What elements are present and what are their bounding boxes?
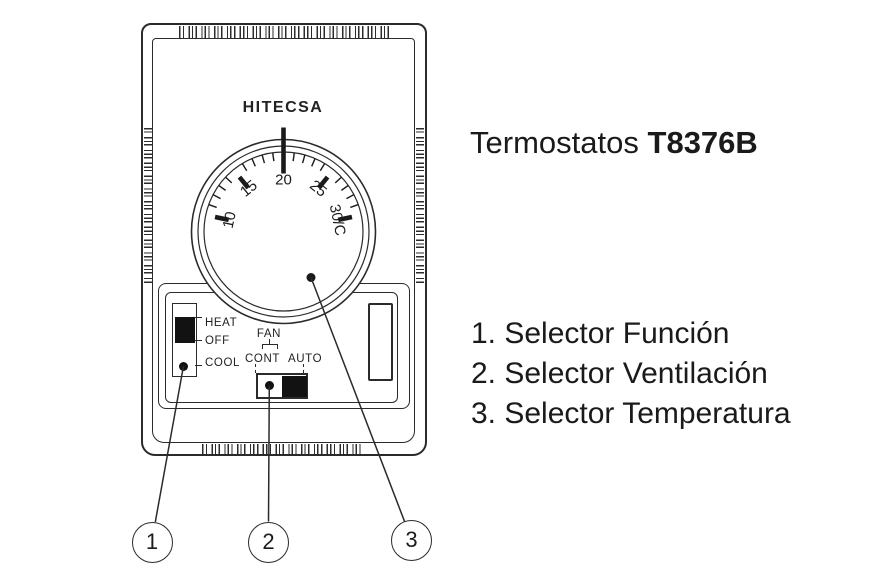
dial-scale-label-10: 10 bbox=[220, 210, 240, 230]
vent-slots-bottom bbox=[202, 444, 364, 454]
position-mark-cool bbox=[195, 365, 202, 366]
function-label-heat: HEAT bbox=[205, 317, 237, 330]
temperature-dial[interactable]: 1015202530/C bbox=[170, 118, 397, 345]
fan-label-cont: CONT bbox=[245, 353, 280, 366]
title-prefix: Termostatos bbox=[470, 125, 639, 160]
vent-slots-left bbox=[144, 127, 152, 283]
callout-2-number: 2 bbox=[262, 529, 274, 555]
fan-label-auto: AUTO bbox=[288, 353, 322, 366]
fan-switch-knob[interactable] bbox=[282, 376, 307, 397]
legend-item-3: 3. Selector Temperatura bbox=[471, 394, 791, 434]
vent-slots-top bbox=[179, 26, 389, 38]
fan-bracket-fork bbox=[262, 344, 278, 350]
callout-2: 2 bbox=[248, 522, 289, 563]
legend-list: 1. Selector Función 2. Selector Ventilac… bbox=[471, 314, 791, 434]
callout-1: 1 bbox=[132, 522, 173, 563]
position-mark-off bbox=[195, 340, 202, 341]
dial-scale-label-20: 20 bbox=[275, 172, 292, 189]
legend-item-2: 2. Selector Ventilación bbox=[471, 354, 791, 394]
position-mark-heat bbox=[195, 317, 202, 318]
callout-3: 3 bbox=[391, 520, 432, 561]
fan-position-connector-cont bbox=[255, 364, 256, 373]
callout-anchor-2 bbox=[265, 381, 274, 390]
callout-anchor-3 bbox=[307, 273, 316, 282]
function-label-cool: COOL bbox=[205, 357, 240, 370]
vent-slots-right bbox=[416, 127, 424, 283]
display-window bbox=[368, 303, 393, 381]
legend-item-1: 1. Selector Función bbox=[471, 314, 791, 354]
brand-label: HITECSA bbox=[183, 99, 383, 117]
callout-3-number: 3 bbox=[405, 527, 417, 553]
function-label-off: OFF bbox=[205, 335, 230, 348]
fan-position-connector-auto bbox=[303, 364, 304, 373]
model-number: T8376B bbox=[648, 125, 758, 160]
thermostat-diagram-page: HITECSA 1015202530/C HEAT OFF COOL FAN C… bbox=[0, 0, 889, 579]
callout-anchor-1 bbox=[179, 362, 188, 371]
leader-lines bbox=[0, 0, 889, 579]
callout-1-number: 1 bbox=[146, 529, 158, 555]
page-title: TermostatosT8376B bbox=[470, 125, 758, 160]
function-switch-knob[interactable] bbox=[175, 317, 195, 343]
